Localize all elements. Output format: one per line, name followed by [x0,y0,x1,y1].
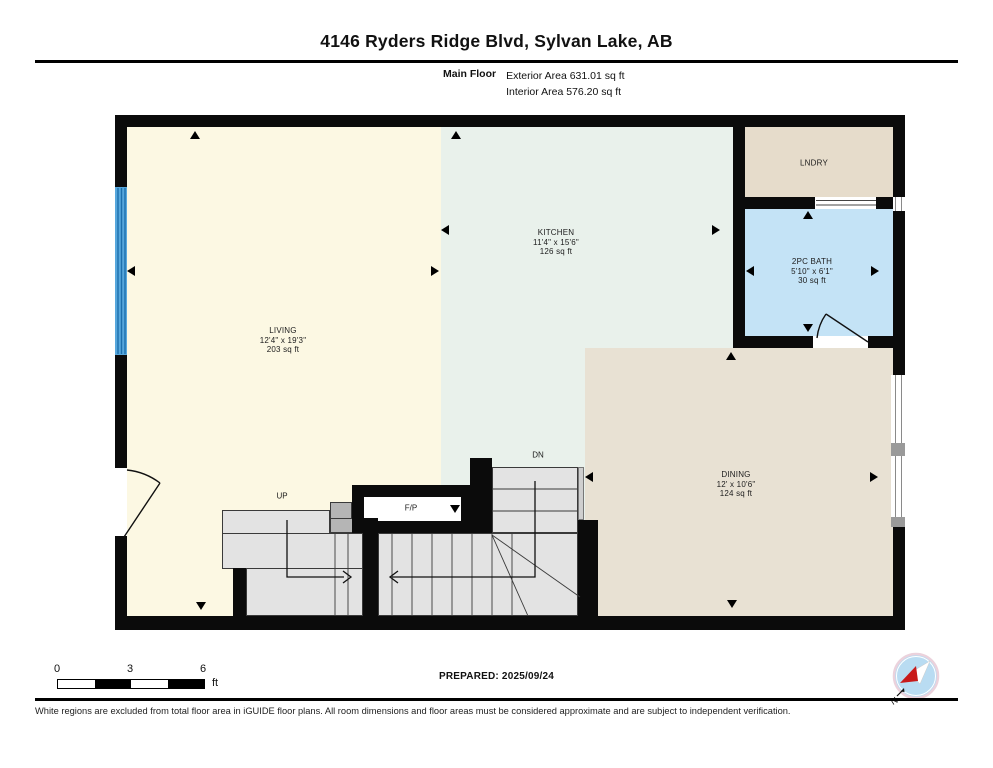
living-label: LIVING12'4" x 19'3"203 sq ft [260,326,306,355]
dim-arrow-dining-right-icon [870,472,878,482]
dim-arrow-bath-bottom-icon [803,324,813,332]
laundry-door-gap [816,199,876,207]
dining-label: DINING12' x 10'6"124 sq ft [717,470,756,499]
window-right-lower-icon [891,456,905,517]
dim-arrow-bath-right-icon [871,266,879,276]
stair-wall-left [233,568,246,616]
dim-arrow-kitchen-bottom-icon [450,505,460,513]
header-divider [35,60,958,63]
exterior-area: Exterior Area 631.01 sq ft [506,68,624,84]
stairs-up-top-run [222,510,330,534]
dim-arrow-bath-left-icon [746,266,754,276]
bath-door-gap [814,338,868,346]
floor-label: Main Floor [443,68,496,100]
disclaimer-text: White regions are excluded from total fl… [35,706,965,716]
dim-arrow-kitchen-left-icon [441,225,449,235]
dim-arrow-living-top-icon [190,131,200,139]
fireplace-label: F/P [405,504,417,513]
wall-top [115,115,905,127]
stair-railing [578,467,584,520]
window-sill [891,517,905,527]
stairs-down-label: DN [532,451,544,460]
dim-arrow-kitchen-right-icon [712,225,720,235]
dim-arrow-living-left-icon [127,266,135,276]
wall-laundry-bottom [745,197,815,209]
wall-laundry-bottom-stub [876,197,893,209]
stairs-center-run [378,533,578,616]
wall-bottom [115,616,905,630]
floorplan-page: 4146 Ryders Ridge Blvd, Sylvan Lake, AB … [0,0,993,768]
dim-arrow-dining-bottom-icon [727,600,737,608]
stairs-up-mid [222,533,363,569]
stairs-down-upper-run [492,467,578,533]
dim-arrow-living-bottom-icon [196,602,206,610]
kitchen-area [441,127,733,348]
stair-wall-center [363,518,378,616]
entry-door-gap [115,468,127,536]
right-wall-gap [893,197,905,211]
stair-pillar-upper [470,458,492,533]
kitchen-label: KITCHEN11'4" x 15'6"126 sq ft [533,228,579,257]
dim-arrow-living-right-icon [431,266,439,276]
bath-label: 2PC BATH5'10" x 6'1"30 sq ft [791,257,833,286]
wall-kitchen-bath [733,127,745,348]
dim-arrow-bath-top-icon [803,211,813,219]
floor-summary: Main Floor Exterior Area 631.01 sq ft In… [443,68,625,100]
stair-pillar-lower [578,520,598,616]
stairs-up-label: UP [276,492,287,501]
laundry-label: LNDRY [800,158,828,168]
stairs-up-lower [246,568,363,616]
footer-divider [35,698,958,701]
window-mullion [891,443,905,456]
wall-right [893,115,905,630]
wall-bath-bottom [733,336,813,348]
dim-arrow-dining-top-icon [726,352,736,360]
page-title: 4146 Ryders Ridge Blvd, Sylvan Lake, AB [0,31,993,52]
window-left-icon [115,187,127,355]
dim-arrow-kitchen-top-icon [451,131,461,139]
prepared-date: PREPARED: 2025/09/24 [0,671,993,682]
dim-arrow-dining-left-icon [585,472,593,482]
interior-area: Interior Area 576.20 sq ft [506,84,624,100]
wall-bath-bottom-stub [868,336,893,348]
window-right-upper-icon [891,375,905,443]
